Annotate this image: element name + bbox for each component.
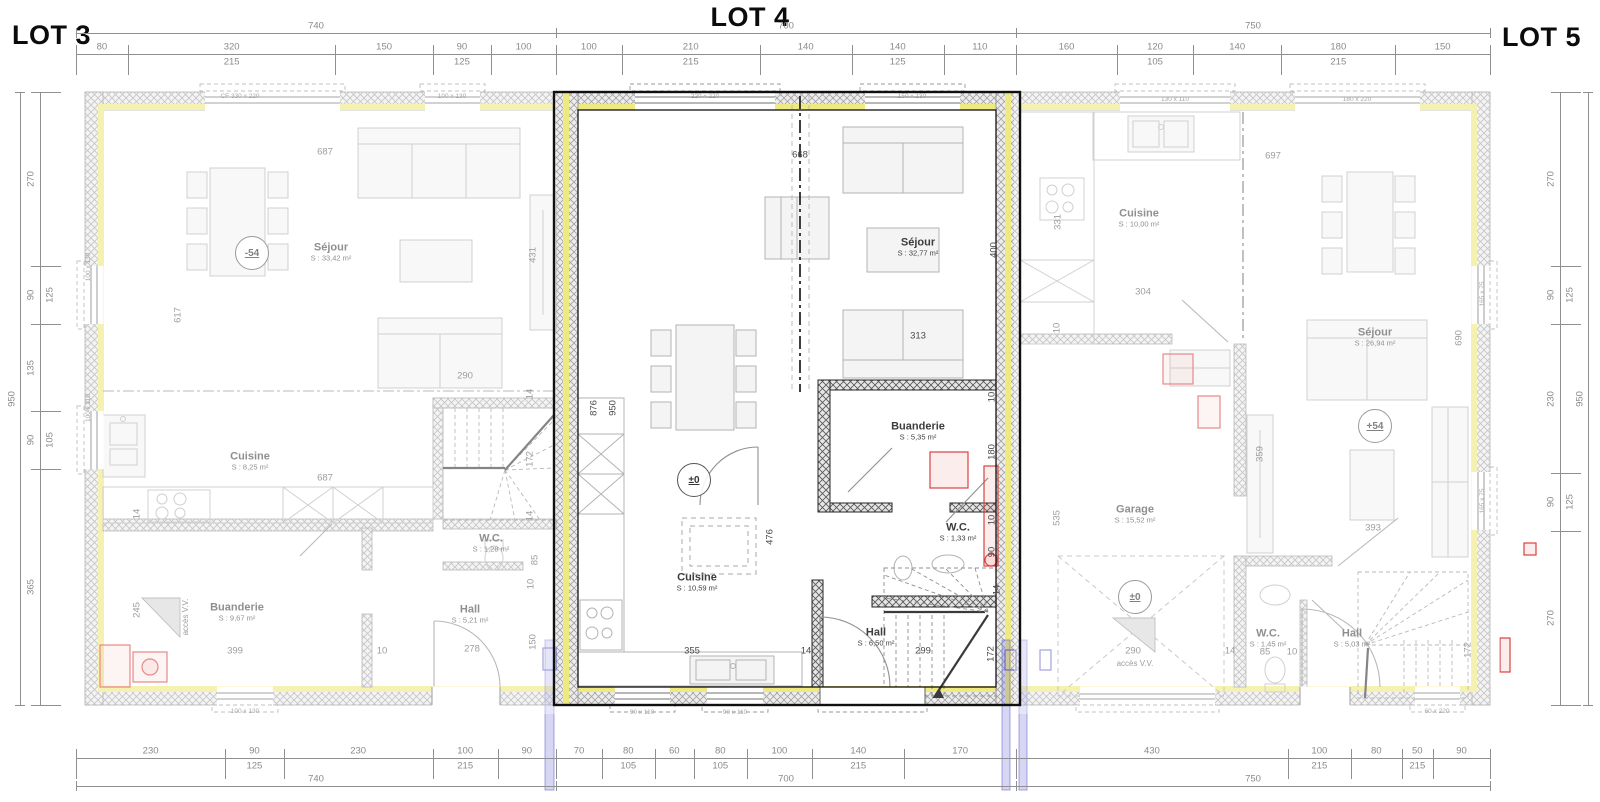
blue-pipes [543, 640, 1051, 790]
washbasin [932, 555, 964, 573]
lot5-fade-overlay [1014, 82, 1500, 714]
floor-plan-drawing [0, 0, 1600, 802]
interior-walls-lot4 [812, 380, 996, 687]
staircase-lot4 [884, 568, 996, 698]
washing-machine [930, 452, 968, 488]
lot4-title: LOT 4 [710, 2, 789, 33]
dining-table [676, 325, 734, 430]
cooktop [580, 600, 622, 650]
toilet [894, 556, 912, 580]
floor-plan-page: LOT 3 LOT 4 LOT 5 8032021515090125100740… [0, 0, 1600, 802]
lot3-title: LOT 3 [12, 20, 91, 51]
coffee-table [867, 228, 939, 272]
lot5-title: LOT 5 [1502, 22, 1581, 53]
downpipe [1002, 640, 1010, 790]
lot3-fade-overlay [70, 82, 556, 714]
entry-door-lot4 [818, 687, 927, 713]
